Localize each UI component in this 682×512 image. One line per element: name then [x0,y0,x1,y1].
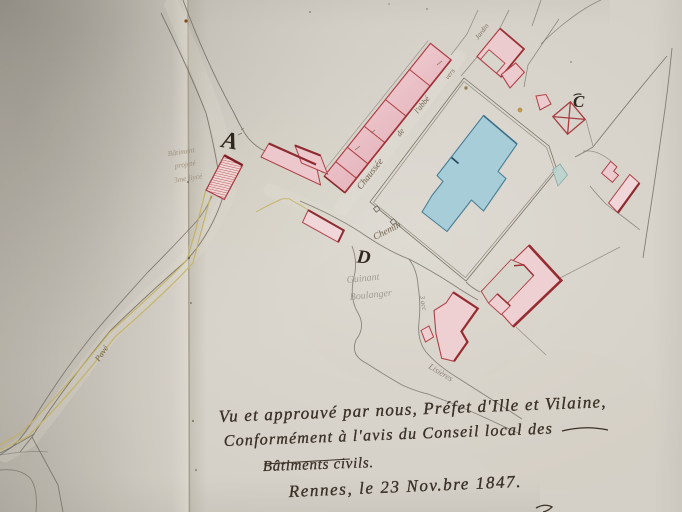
svg-text:D: D [355,246,372,268]
